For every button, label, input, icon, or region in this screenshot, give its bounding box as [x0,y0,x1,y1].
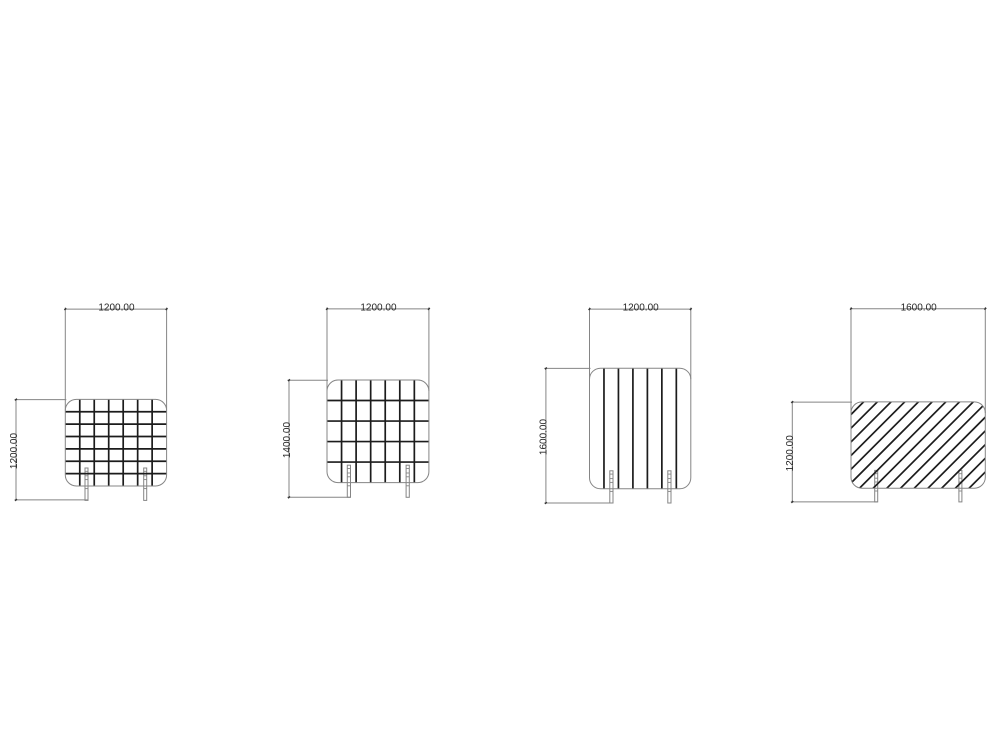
svg-text:1200.00: 1200.00 [623,303,660,314]
svg-text:1200.00: 1200.00 [785,435,796,472]
svg-text:1200.00: 1200.00 [9,433,20,470]
svg-text:1400.00: 1400.00 [282,422,293,459]
svg-text:1600.00: 1600.00 [539,418,550,455]
svg-text:1200.00: 1200.00 [360,302,397,313]
svg-text:1200.00: 1200.00 [98,303,135,314]
svg-text:1600.00: 1600.00 [901,302,938,313]
